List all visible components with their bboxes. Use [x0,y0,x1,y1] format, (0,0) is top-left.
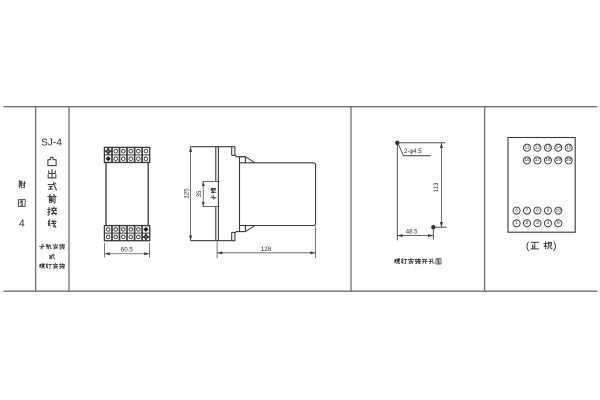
svg-text:128: 128 [261,246,272,253]
svg-text:16: 16 [524,157,530,163]
svg-text:4: 4 [19,217,25,229]
svg-text:2-φ4.5: 2-φ4.5 [404,149,422,155]
svg-text:125: 125 [184,188,191,199]
svg-text:6: 6 [515,207,518,213]
svg-text:15: 15 [566,144,572,150]
svg-text:60.5: 60.5 [121,247,134,254]
svg-text:20: 20 [566,157,572,163]
svg-text:13: 13 [545,144,551,150]
svg-text:9: 9 [547,207,550,213]
svg-text:8: 8 [536,207,539,213]
svg-text:): ) [553,240,557,252]
svg-text:3: 3 [536,220,539,226]
svg-text:113: 113 [434,182,440,192]
svg-text:7: 7 [526,207,529,213]
svg-text:14: 14 [556,144,562,150]
svg-text:2: 2 [526,220,529,226]
svg-text:10: 10 [556,207,562,213]
svg-text:48.5: 48.5 [406,230,418,236]
svg-text:5: 5 [557,220,560,226]
svg-text:4: 4 [547,220,550,226]
svg-text:11: 11 [525,144,530,150]
svg-text:17: 17 [535,157,541,163]
svg-text:12: 12 [535,144,541,150]
svg-text:SJ-4: SJ-4 [41,138,62,149]
svg-text:19: 19 [556,157,562,163]
svg-text:18: 18 [545,157,551,163]
svg-text:1: 1 [515,220,518,226]
svg-text:(: ( [526,240,530,252]
svg-text:35: 35 [197,190,203,197]
